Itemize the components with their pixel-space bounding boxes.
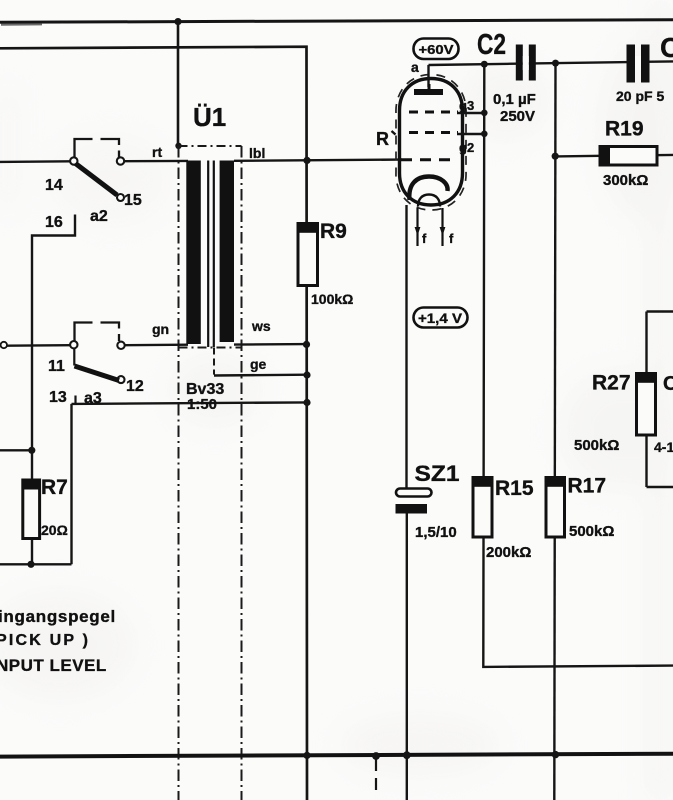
svg-text:1,5/10: 1,5/10 bbox=[415, 524, 457, 541]
svg-text:ws: ws bbox=[251, 318, 271, 334]
svg-text:SZ1: SZ1 bbox=[415, 461, 460, 486]
svg-text:C: C bbox=[663, 373, 673, 395]
svg-text:0,1 µF: 0,1 µF bbox=[493, 91, 536, 108]
svg-text:rt: rt bbox=[152, 144, 162, 160]
svg-text:ingangspegel: ingangspegel bbox=[0, 607, 116, 626]
svg-text:4-1: 4-1 bbox=[654, 439, 673, 455]
svg-text:15: 15 bbox=[124, 192, 142, 209]
svg-text:+60V: +60V bbox=[419, 42, 454, 57]
svg-text:500kΩ: 500kΩ bbox=[569, 523, 614, 540]
svg-text:R7: R7 bbox=[41, 476, 68, 499]
svg-text:C: C bbox=[660, 32, 673, 63]
svg-text:11: 11 bbox=[48, 358, 65, 375]
svg-text:C2: C2 bbox=[477, 29, 506, 61]
svg-text:R19: R19 bbox=[605, 118, 644, 141]
svg-text:R9: R9 bbox=[320, 220, 347, 243]
svg-text:gn: gn bbox=[152, 321, 169, 337]
svg-text:lbl: lbl bbox=[249, 145, 265, 161]
svg-text:g3: g3 bbox=[459, 98, 474, 113]
svg-text:a2: a2 bbox=[90, 208, 108, 225]
svg-text:300kΩ: 300kΩ bbox=[603, 172, 648, 189]
svg-text:g2: g2 bbox=[459, 140, 474, 155]
svg-text:f: f bbox=[449, 231, 454, 246]
svg-text:12: 12 bbox=[126, 378, 144, 395]
svg-text:500kΩ: 500kΩ bbox=[574, 437, 619, 454]
svg-text:250V: 250V bbox=[500, 108, 535, 125]
svg-text:20Ω: 20Ω bbox=[41, 522, 68, 538]
svg-text:a: a bbox=[411, 59, 419, 75]
svg-text:R15: R15 bbox=[495, 477, 534, 500]
svg-text:1:50: 1:50 bbox=[187, 396, 217, 413]
svg-text:13: 13 bbox=[49, 389, 67, 406]
svg-text:PICK UP ): PICK UP ) bbox=[0, 632, 90, 649]
svg-text:Ü1: Ü1 bbox=[193, 102, 226, 132]
svg-text:ge: ge bbox=[250, 356, 267, 372]
svg-text:R: R bbox=[376, 129, 389, 149]
svg-text:+1,4 V: +1,4 V bbox=[418, 311, 462, 326]
svg-text:R27: R27 bbox=[592, 372, 631, 395]
svg-text:NPUT LEVEL: NPUT LEVEL bbox=[0, 656, 107, 675]
svg-text:100kΩ: 100kΩ bbox=[311, 291, 353, 307]
svg-text:R17: R17 bbox=[568, 475, 607, 498]
svg-text:200kΩ: 200kΩ bbox=[486, 544, 531, 561]
svg-text:16: 16 bbox=[45, 214, 63, 231]
svg-text:14: 14 bbox=[45, 177, 63, 194]
svg-text:f: f bbox=[422, 231, 427, 246]
svg-text:a3: a3 bbox=[84, 390, 102, 407]
svg-text:20 pF 5: 20 pF 5 bbox=[616, 88, 664, 104]
